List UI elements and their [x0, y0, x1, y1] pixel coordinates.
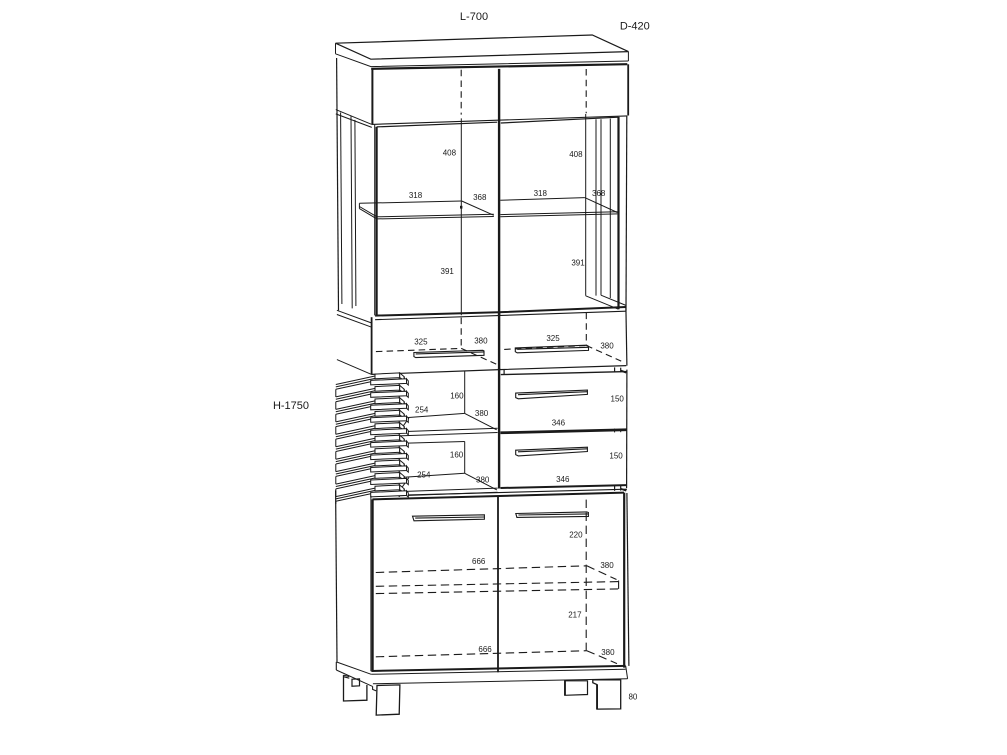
svg-text:380: 380 — [476, 476, 490, 485]
svg-text:160: 160 — [450, 451, 464, 460]
svg-text:L-700: L-700 — [460, 11, 488, 23]
svg-text:H-1750: H-1750 — [273, 400, 309, 412]
svg-text:D-420: D-420 — [620, 21, 650, 33]
svg-text:217: 217 — [568, 611, 582, 620]
svg-text:346: 346 — [552, 418, 566, 427]
svg-text:368: 368 — [473, 193, 487, 202]
svg-text:325: 325 — [546, 334, 560, 343]
svg-text:666: 666 — [472, 557, 486, 566]
svg-text:408: 408 — [443, 149, 457, 158]
svg-text:380: 380 — [475, 409, 489, 418]
svg-text:80: 80 — [628, 693, 637, 702]
svg-text:254: 254 — [415, 405, 429, 414]
svg-text:408: 408 — [569, 150, 583, 159]
svg-text:380: 380 — [601, 648, 615, 657]
svg-text:380: 380 — [600, 342, 614, 351]
svg-text:346: 346 — [556, 475, 570, 484]
svg-text:325: 325 — [414, 337, 428, 346]
svg-text:160: 160 — [450, 392, 464, 401]
svg-text:380: 380 — [474, 336, 488, 345]
svg-text:150: 150 — [611, 394, 625, 403]
svg-text:380: 380 — [600, 561, 614, 570]
svg-text:391: 391 — [571, 259, 585, 268]
svg-text:254: 254 — [417, 471, 431, 480]
svg-text:318: 318 — [534, 189, 548, 198]
svg-text:666: 666 — [478, 645, 492, 654]
svg-text:368: 368 — [592, 189, 606, 198]
svg-text:220: 220 — [569, 530, 583, 539]
svg-text:318: 318 — [409, 191, 423, 200]
svg-text:391: 391 — [441, 267, 455, 276]
svg-text:150: 150 — [609, 451, 623, 460]
